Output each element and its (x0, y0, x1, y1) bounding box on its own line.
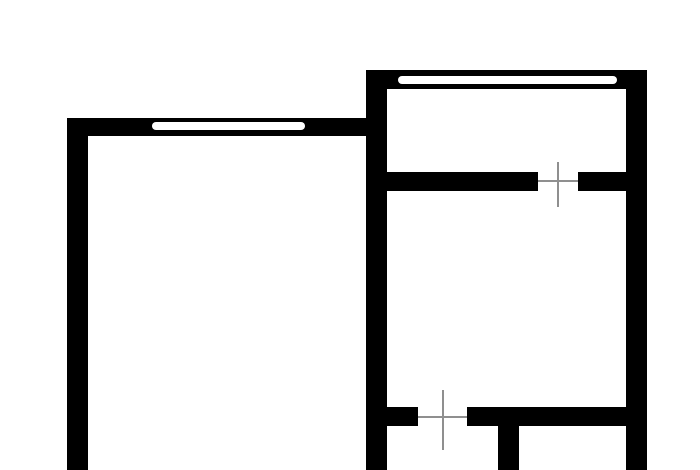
lower-divider-wall-left-stub (387, 407, 418, 426)
upper-divider-wall-right-segment (578, 172, 626, 191)
upper-door-marker-horizontal-line (538, 180, 578, 182)
left-room-window (152, 122, 305, 130)
upper-door-marker-vertical-line (557, 162, 559, 207)
right-room-window (398, 76, 617, 84)
left-exterior-wall (67, 118, 88, 470)
floor-plan (0, 0, 700, 470)
bottom-partition-wall (498, 426, 519, 470)
right-exterior-wall (626, 70, 647, 470)
lower-door-marker-vertical-line (442, 390, 444, 450)
lower-door-marker-horizontal-line (418, 416, 467, 418)
upper-divider-wall-left-segment (387, 172, 538, 191)
lower-divider-wall-right-segment (467, 407, 626, 426)
center-shared-wall (366, 70, 387, 470)
